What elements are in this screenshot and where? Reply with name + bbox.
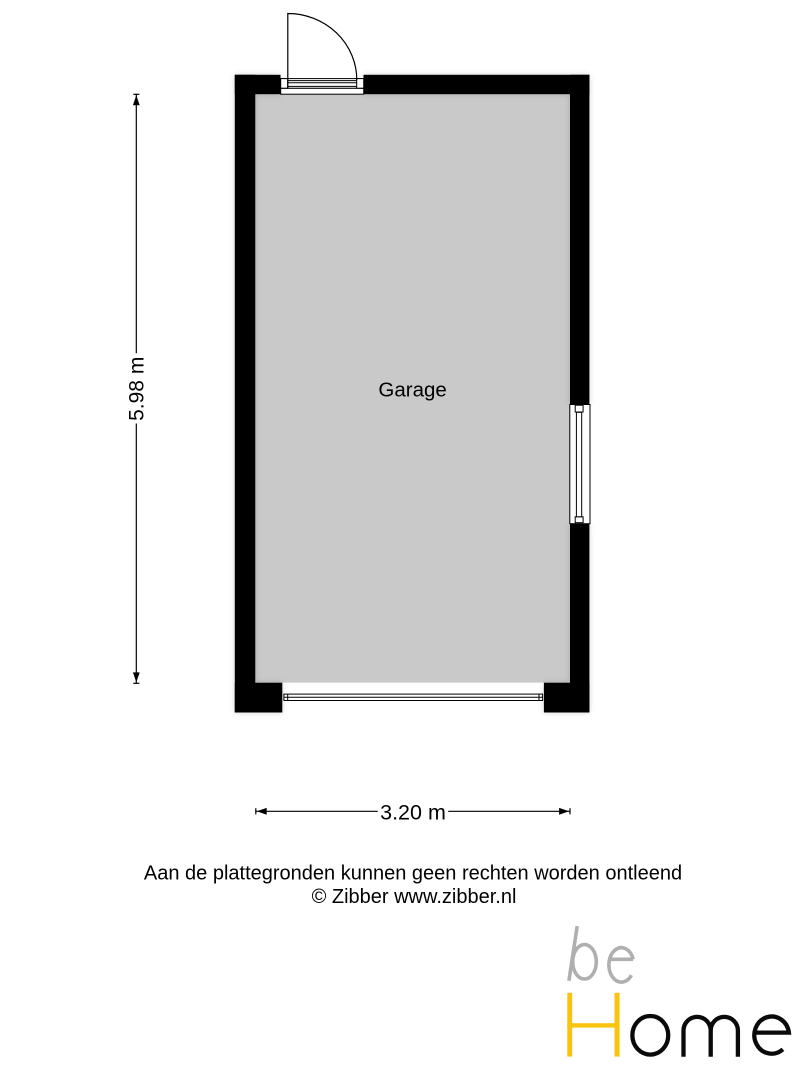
svg-text:© Zibber www.zibber.nl: © Zibber www.zibber.nl <box>312 886 517 908</box>
svg-text:Garage: Garage <box>378 378 446 401</box>
svg-text:3.20 m: 3.20 m <box>380 800 446 824</box>
svg-text:5.98 m: 5.98 m <box>126 357 149 421</box>
svg-text:Aan de plattegronden kunnen ge: Aan de plattegronden kunnen geen rechten… <box>144 863 682 885</box>
